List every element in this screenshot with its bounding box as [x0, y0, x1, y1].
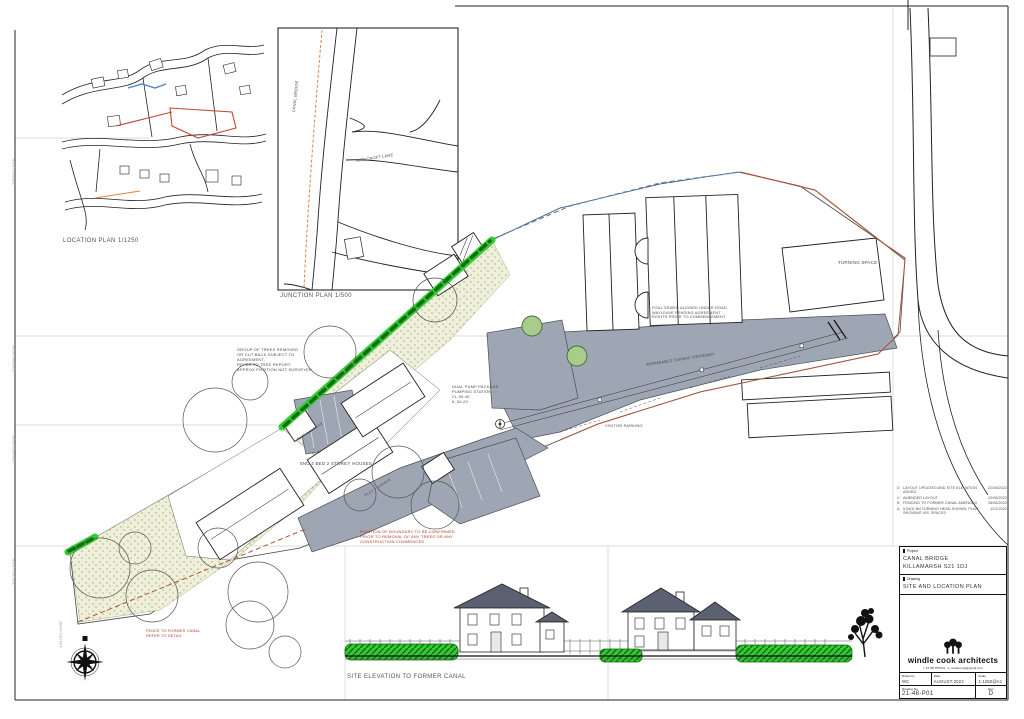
junction-plan-label: JUNCTION PLAN 1/500	[280, 293, 352, 301]
title-block-project: Project CANAL BRIDGE KILLAMARSH S21 1DJ	[900, 547, 1006, 575]
note-turning-space: TURNING SPACE	[838, 260, 877, 266]
title-block-row-2: Drawing No. 21-48-P01 Rev. D	[900, 686, 1006, 699]
grid-label-3: 380400.000N	[11, 435, 16, 462]
drawing-no-cell: Drawing No. 21-48-P01	[900, 686, 976, 699]
revision-row: A 5 (NO) 5M TURNING HEAD SHOWN, PLAN SHO…	[897, 507, 1007, 515]
note-visitor-parking: VISITOR PARKING	[605, 423, 643, 428]
title-block-branding: windle cook architects t: 07790 857001 ·…	[900, 595, 1006, 672]
elevation-house-2	[622, 588, 740, 650]
grid-label-1: 380600.000N	[11, 158, 16, 185]
site-elevation-label: SITE ELEVATION TO FORMER CANAL	[347, 674, 466, 682]
revision-row: D LAYOUT UPDATED AND SITE ELEVATION ADDE…	[897, 486, 1007, 494]
revision-cell: Rev. D	[976, 686, 1006, 699]
elevation-tree	[848, 608, 883, 657]
location-plan-label: LOCATION PLAN 1/1250	[63, 238, 139, 246]
revision-row: C AMENDED LAYOUT 22/08/2022	[897, 496, 1007, 500]
elevation-house-1	[454, 584, 568, 652]
note-boundary: POSITION OF BOUNDARY TO BE CONFIRMED PRI…	[360, 529, 455, 544]
note-sewer: FOUL SEWER ALIGNED UNDER ROAD, WAYLEAVE …	[652, 306, 728, 320]
drawing-label: Drawing	[903, 577, 1003, 581]
location-plan	[62, 45, 266, 230]
note-canal-fence: FENCE TO FORMER CANAL REFER TO DETAIL	[146, 629, 200, 638]
north-compass	[66, 636, 104, 681]
drawn-by-cell: Drawn by WC	[900, 673, 932, 685]
project-label: Project	[903, 549, 1003, 553]
pump-station-symbol	[496, 420, 505, 429]
note-pump-station: DUAL PUMP PACKAGE PUMPING STATION CL 55.…	[452, 384, 499, 404]
site-plan-drawing	[0, 0, 1024, 719]
firm-contact: t: 07790 857001 · e: windlecook@gmail.co…	[923, 666, 982, 670]
project-name: CANAL BRIDGE	[903, 555, 1003, 563]
grid-label-2: 380500.000N	[11, 345, 16, 372]
adjacent-roads	[910, 8, 1008, 545]
title-block-row-1: Drawn by WC Date AUGUST 2022 Scale 1:125…	[900, 673, 1006, 686]
drawing-title: SITE AND LOCATION PLAN	[903, 583, 1003, 591]
title-block-drawing: Drawing SITE AND LOCATION PLAN	[900, 575, 1006, 595]
drawing-sheet: LOCATION PLAN 1/1250 JUNCTION PLAN 1/500…	[0, 0, 1024, 719]
note-trees: GROUP OF TREES REMOVED OR CUT BACK SUBJE…	[237, 347, 312, 372]
date-cell: Date AUGUST 2022	[932, 673, 977, 685]
note-houses: 5NO 4 BED 2 STOREY HOUSES	[300, 461, 372, 467]
grid-label-5: 445750.000E	[58, 621, 63, 648]
title-block-table: Drawn by WC Date AUGUST 2022 Scale 1:125…	[900, 672, 1006, 699]
revision-row: B FENCING TO FORMER CANAL AMENDED 28/06/…	[897, 501, 1007, 505]
site-elevation	[345, 584, 883, 662]
project-address: KILLAMARSH S21 1DJ	[903, 563, 1003, 571]
firm-name: windle cook architects	[908, 656, 998, 665]
firm-logo-tree-icon	[943, 638, 963, 656]
title-block: Project CANAL BRIDGE KILLAMARSH S21 1DJ …	[899, 546, 1007, 699]
elevation-green-bands	[345, 644, 852, 662]
grid-label-4: 380300.000N	[11, 558, 16, 585]
scale-cell: Scale 1:1250@A1	[976, 673, 1006, 685]
revision-notes: D LAYOUT UPDATED AND SITE ELEVATION ADDE…	[897, 486, 1007, 516]
